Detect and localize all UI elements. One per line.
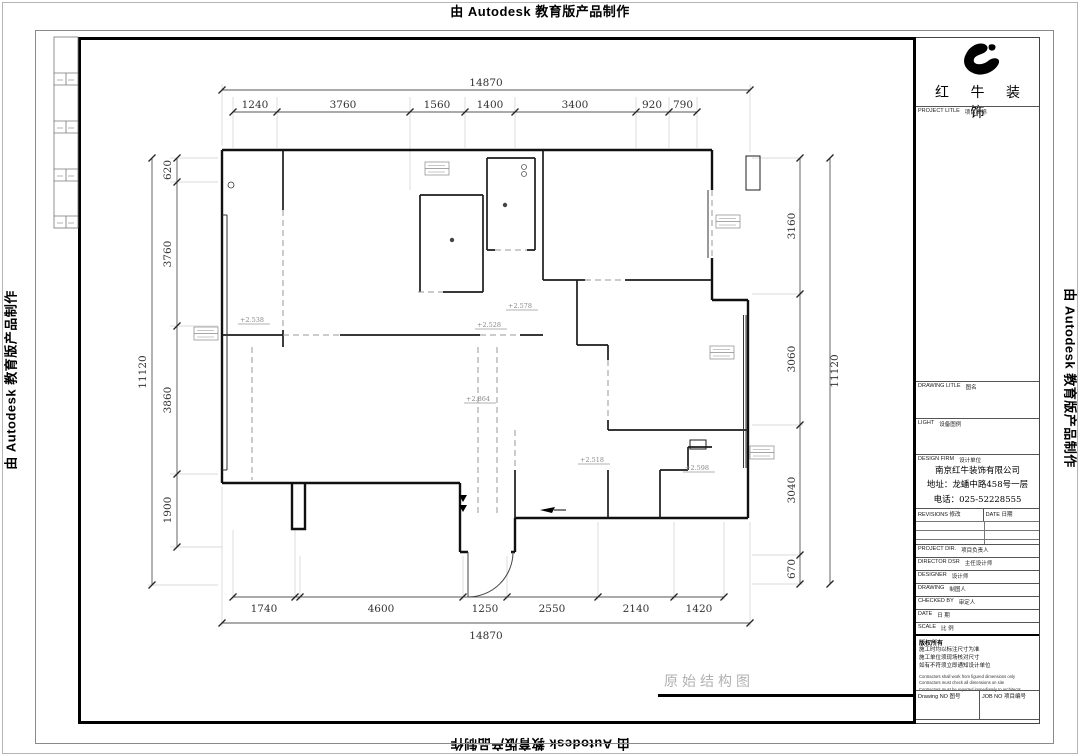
titleblock-row-project-dir: PROJECT DIR. 项目负责人 [916,544,1039,556]
dim-left-seg: 1900 [162,497,174,524]
copyright-notes: 版权所有 施工时均以标注尺寸为准 施工单位须现场核对尺寸 如有不符须立即通知设计… [916,634,1039,695]
dim-top-seg: 920 [642,99,662,111]
extension-lines [148,84,803,627]
svg-text:+2.528: +2.528 [477,321,501,329]
titleblock-row-scale: SCALE 比 例 [916,622,1039,634]
dim-top-seg: 790 [673,99,693,111]
dim-top-total: 14870 [469,77,502,89]
titleblock-row-drawing: DRAWING 制图人 [916,583,1039,595]
dim-left-total: 11120 [137,355,149,388]
titleblock-row-date: DATE 日 期 [916,609,1039,621]
dim-bottom-seg: 4600 [368,603,395,615]
revision-empty-row [916,530,1039,539]
elevation-markers: +2.538 +2.578 +2.528 +2.864 +2.518 +2.59… [238,302,715,472]
dim-left-seg: 3860 [162,387,174,414]
company-phone: 电话：025-52228555 [916,493,1039,507]
interior-walls [222,150,760,518]
titleblock-row-director: DIRECTOR DSR 主任设计师 [916,557,1039,569]
dim-right-total: 11120 [829,354,841,387]
revisions-header: REVISIONS 修改 [916,509,984,521]
svg-text:+2.864: +2.864 [466,395,490,403]
entry-door [468,552,513,597]
company-info: 南京红牛装饰有限公司 地址：龙蟠中路458号一层 电话：025-52228555 [916,464,1039,507]
signature-strip [54,37,78,228]
job-no-cell: JOB NO 项目编号 [980,691,1028,719]
drawing-title-underline [658,694,914,697]
hongniu-logo [916,42,1039,87]
dim-left-seg: 3760 [162,241,174,268]
window-annotation-boxes [194,162,774,459]
revisions-date-header: DATE 日期 [984,509,1015,521]
dim-right-seg: 3040 [786,477,798,504]
titleblock-row-drawing-title: DRAWING LITLE 图名 [916,381,1039,393]
titleblock-row-checked-by: CHECKED BY 审定人 [916,596,1039,608]
dim-top-seg: 1400 [477,99,504,111]
svg-text:+2.578: +2.578 [508,302,532,310]
dashed-lines [252,190,712,515]
entry-arrows [459,495,566,513]
dim-right-seg: 3060 [786,346,798,373]
company-address: 地址：龙蟠中路458号一层 [916,478,1039,492]
dim-top-seg: 3760 [330,99,357,111]
cad-sheet: 由 Autodesk 教育版产品制作 由 Autodesk 教育版产品制作 由 … [0,0,1080,756]
dim-top-seg: 1240 [242,99,269,111]
dim-bottom-seg: 2550 [539,603,566,615]
copyright-caption: 版权所有 [919,638,1036,647]
title-block: 红 牛 装 饰 PROJECT LITLE 项目名称 DRAWING LITLE… [916,37,1040,724]
dim-top-seg: 1560 [424,99,451,111]
dim-bottom-total: 14870 [469,630,502,642]
svg-text:+2.598: +2.598 [685,464,709,472]
svg-text:+2.538: +2.538 [240,316,264,324]
svg-text:+2.518: +2.518 [580,456,604,464]
dim-left-seg: 620 [162,160,174,180]
drawing-no-cell: Drawing NO 图号 [916,691,980,719]
dim-right-seg: 670 [786,559,798,579]
dim-bottom-seg: 2140 [623,603,650,615]
revisions-divider [984,521,985,544]
dim-right-seg: 3160 [786,213,798,240]
outer-walls [222,150,748,552]
drawing-number-row: Drawing NO 图号 JOB NO 项目编号 [916,690,1039,720]
dim-top-seg: 3400 [562,99,589,111]
titleblock-row-designer: DESIGNER 设计师 [916,570,1039,582]
fixture-dots [450,165,527,243]
dim-bottom-seg: 1250 [472,603,499,615]
bull-logo-icon [952,42,1004,82]
dim-bottom-seg: 1420 [686,603,713,615]
revision-empty-row [916,521,1039,530]
titleblock-row-project-title: PROJECT LITLE 项目名称 [916,106,1039,118]
dimension-labels: 14870 1240 3760 1560 1400 3400 920 790 1… [137,77,841,642]
dim-bottom-seg: 1740 [251,603,278,615]
titleblock-row-light: LIGHT 设备图例 [916,418,1039,430]
revisions-table: REVISIONS 修改 DATE 日期 [916,508,1039,544]
drawing-title-label: 原始结构图 [664,671,754,691]
company-name: 南京红牛装饰有限公司 [916,464,1039,478]
